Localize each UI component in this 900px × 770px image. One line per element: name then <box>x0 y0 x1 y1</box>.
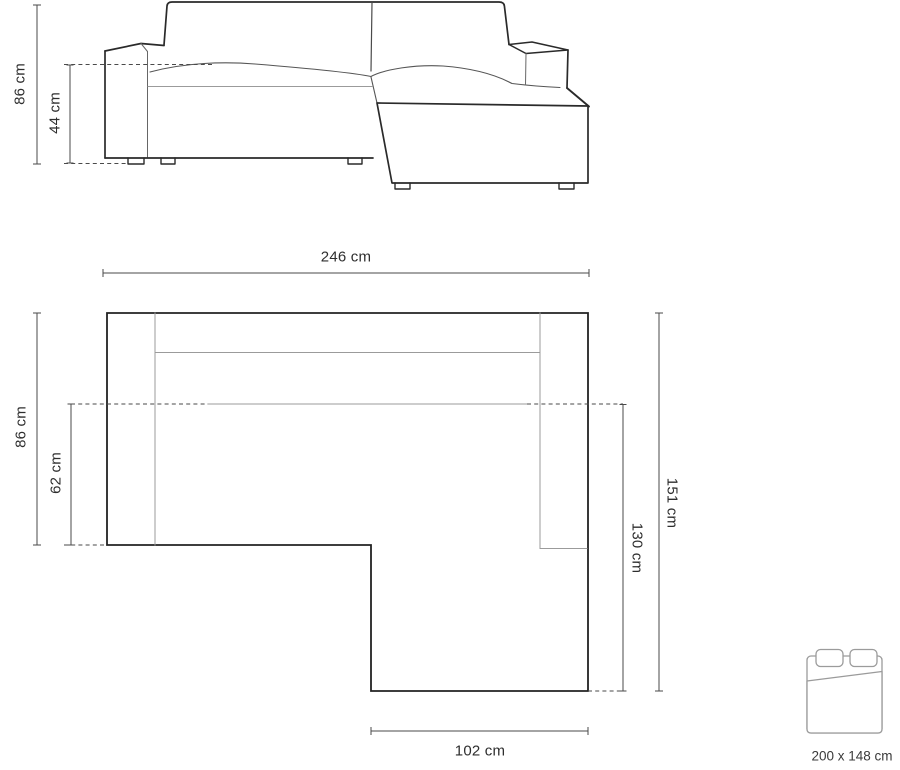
front-backrest <box>164 2 509 45</box>
chaise-length-label: 130 cm <box>630 523 645 573</box>
dim-line-front-seat-height <box>67 65 74 163</box>
dim-line-chaise-width <box>371 727 588 735</box>
sofa-top-view-icon <box>107 313 588 691</box>
seat-depth-label: 62 cm <box>49 452 64 494</box>
body-depth-label: 86 cm <box>14 406 29 448</box>
front-height-label: 86 cm <box>13 63 28 105</box>
dim-line-body-depth <box>33 313 41 545</box>
bed-pillow-right <box>850 650 877 667</box>
total-length-label: 151 cm <box>665 478 680 528</box>
front-right-armrest <box>509 42 568 54</box>
total-width-label: 246 cm <box>321 250 371 265</box>
front-chaise <box>377 103 588 183</box>
dim-line-seat-depth <box>68 404 75 545</box>
sofa-front-view-icon <box>105 2 589 189</box>
front-view-dimensions <box>33 5 213 164</box>
bed-icon <box>807 650 882 734</box>
dim-line-total-length <box>655 313 663 691</box>
front-left-armrest <box>105 44 164 52</box>
front-seat-height-label: 44 cm <box>48 92 63 134</box>
plan-outline <box>107 313 588 691</box>
dim-line-chaise-length <box>620 405 627 692</box>
plan-inner-lines <box>155 313 587 549</box>
chaise-width-label: 102 cm <box>455 744 505 759</box>
sleeping-area-size-label: 200 x 148 cm <box>811 749 892 763</box>
bed-pillow-left <box>816 650 843 667</box>
diagram-canvas <box>0 0 900 770</box>
bed-duvet <box>807 672 882 734</box>
front-right-cushion <box>371 66 560 88</box>
dim-line-front-height <box>33 5 41 164</box>
sofa-dimensions-diagram: 86 cm 44 cm 246 cm 86 cm 62 cm 151 cm 13… <box>0 0 900 770</box>
front-backrest-split <box>371 3 372 72</box>
dim-line-total-width <box>103 269 589 277</box>
top-view-dimensions <box>33 269 663 735</box>
